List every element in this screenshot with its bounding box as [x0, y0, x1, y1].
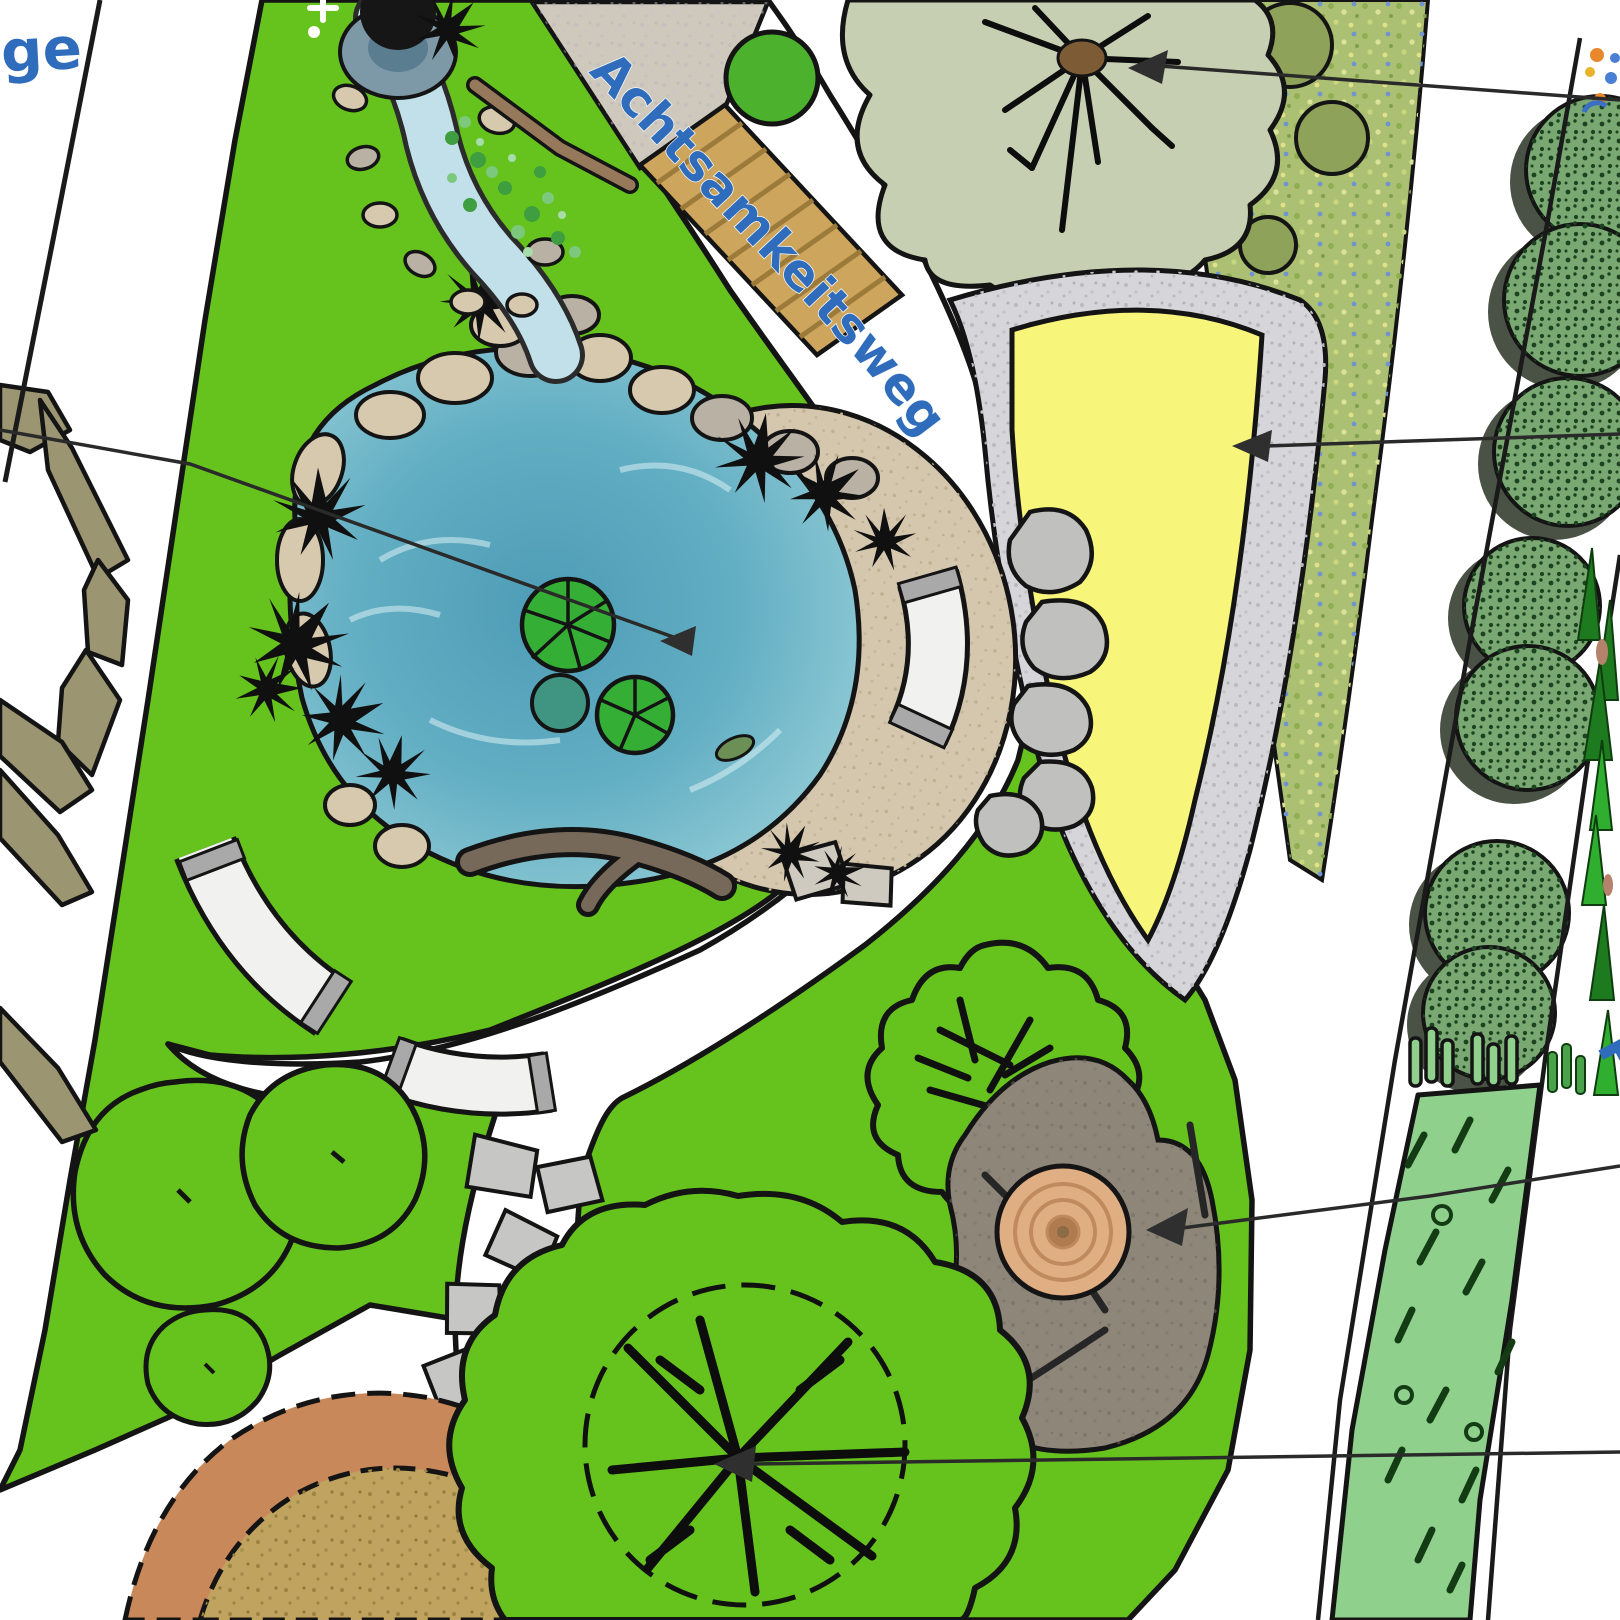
- large-canopy-tree: [842, 0, 1284, 294]
- edge-label-right: P: [1584, 1022, 1620, 1089]
- stepping-stone: [537, 1156, 603, 1213]
- garden-plan-canvas[interactable]: Achtsamkeitsweg ge P: [0, 0, 1620, 1620]
- cut-log: [997, 1166, 1129, 1298]
- perennial-band: [1332, 1028, 1540, 1620]
- garden-plan-viewport[interactable]: Achtsamkeitsweg ge P: [0, 0, 1620, 1620]
- small-tree-canopy: [726, 32, 818, 124]
- tree-trunk: [1058, 40, 1106, 76]
- edge-label-left: ge: [0, 14, 83, 86]
